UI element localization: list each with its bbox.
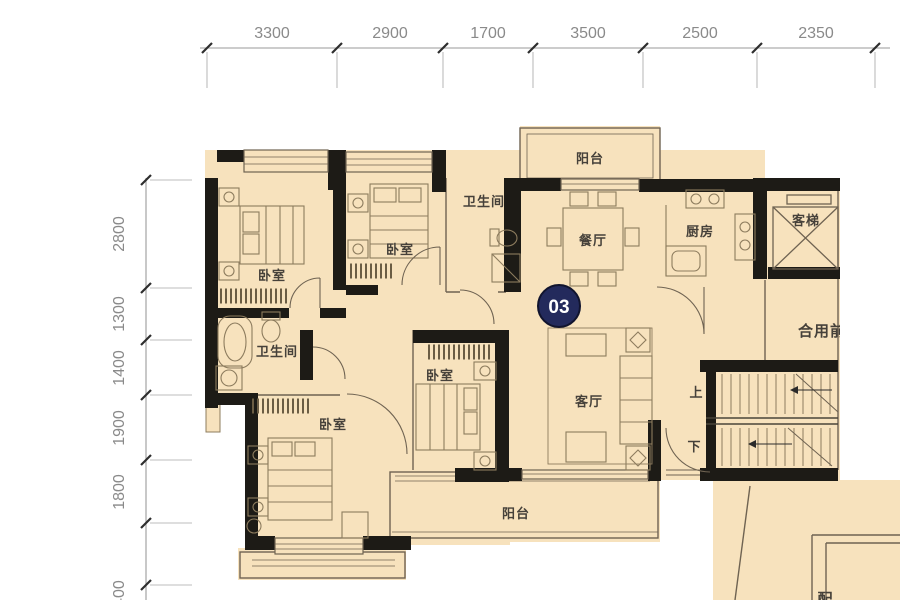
room-label-balcony-bottom: 阳台 xyxy=(502,506,530,521)
room-label-shared-lobby: 合用前 xyxy=(797,322,846,340)
wall-bed-d-top xyxy=(413,330,509,343)
wall-bed-d-right xyxy=(495,335,509,482)
room-label-bath-top: 卫生间 xyxy=(463,194,505,209)
room-label-bedroom-b: 卧室 xyxy=(386,242,414,257)
window-bed-b xyxy=(346,152,432,172)
room-label-balcony-top: 阳台 xyxy=(576,151,604,166)
window-bed-c xyxy=(275,538,363,554)
wall-stairs-left xyxy=(706,372,716,468)
floor-bottom-right xyxy=(713,480,900,600)
wall-living-bottom-l xyxy=(506,468,522,481)
dim-left-0: 2800 xyxy=(111,216,128,252)
right-crop-mask xyxy=(840,55,900,473)
wall-top-b xyxy=(432,150,446,192)
stair-label-up: 上 xyxy=(689,385,702,400)
dim-top-0: 3300 xyxy=(254,25,290,42)
wall-top-a xyxy=(217,150,244,162)
wall-bed-b-bottom xyxy=(346,285,378,295)
dim-top-4: 2500 xyxy=(682,25,718,42)
room-label-elevator: 客梯 xyxy=(792,213,820,228)
dim-ext-top xyxy=(207,52,875,88)
room-label-bath-mid: 卫生间 xyxy=(256,344,298,359)
dim-left-2: 1400 xyxy=(111,350,128,386)
wall-left-stub xyxy=(208,393,248,405)
dim-left-3: 1900 xyxy=(111,410,128,446)
dim-ext-left xyxy=(150,180,192,585)
wall-bed-c-left xyxy=(245,393,258,545)
wall-stairs-bottom xyxy=(700,468,838,481)
room-label-bedroom-c: 卧室 xyxy=(319,417,347,432)
room-label-kitchen: 厨房 xyxy=(686,224,714,239)
wall-bed-c-bottom-l xyxy=(245,536,275,550)
floor-stairwell xyxy=(700,360,838,480)
stair-label-down: 下 xyxy=(687,439,700,454)
wall-elevator-top xyxy=(753,178,840,191)
room-label-living: 客厅 xyxy=(575,394,603,409)
room-label-bedroom-d: 卧室 xyxy=(426,368,454,383)
room-label-dining: 餐厅 xyxy=(578,233,607,248)
dim-top-1: 2900 xyxy=(372,25,408,42)
room-label-bedroom-a: 卧室 xyxy=(258,268,286,283)
dim-left-4: 1800 xyxy=(111,474,128,510)
floor-plan-drawing: 阳台 餐厅 厨房 客梯 卫生间 卧室 卧室 卫生间 卧室 卧室 客厅 阳台 合用… xyxy=(0,0,900,600)
window-living xyxy=(522,470,648,479)
floor-plan-screenshot: 阳台 餐厅 厨房 客梯 卫生间 卧室 卧室 卫生间 卧室 卧室 客厅 阳台 合用… xyxy=(0,0,900,600)
dim-left-1: 1300 xyxy=(111,296,128,332)
window-bed-a xyxy=(244,150,328,172)
window-dining xyxy=(561,179,639,190)
room-label-partial: 配 xyxy=(817,591,832,600)
wall-bed-ab xyxy=(333,178,346,290)
dim-left-5: 1400 xyxy=(111,580,128,600)
unit-badge-number: 03 xyxy=(548,297,569,318)
wall-bed-c-bottom-r xyxy=(363,536,411,550)
dim-top-5: 2350 xyxy=(798,25,834,42)
wall-under-balcony-l xyxy=(506,178,561,191)
wall-stairs-top xyxy=(700,360,838,372)
unit-badge: 03 xyxy=(538,285,580,327)
dim-top-3: 3500 xyxy=(570,25,606,42)
wall-bed-a-bottom2 xyxy=(320,308,346,318)
dim-top-2: 1700 xyxy=(470,25,506,42)
wall-bath-mid xyxy=(300,330,313,380)
